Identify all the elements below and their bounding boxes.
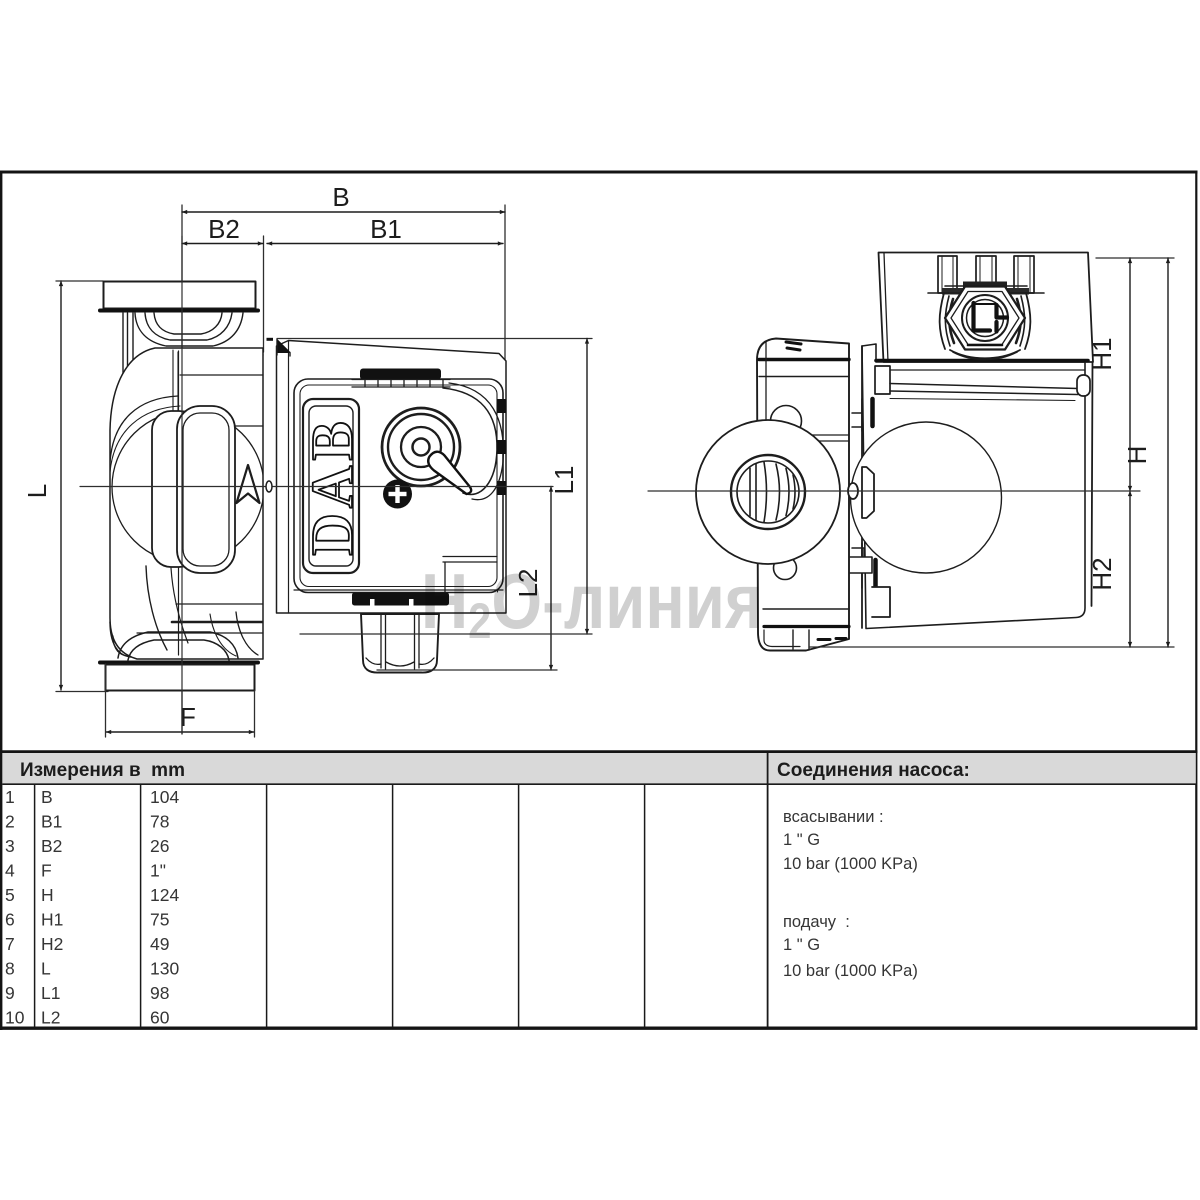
svg-text:2: 2 (5, 812, 15, 832)
svg-text:B: B (332, 182, 349, 212)
svg-text:Соединения насоса:: Соединения насоса: (777, 760, 970, 781)
svg-text:H2: H2 (1087, 557, 1117, 590)
svg-text:60: 60 (150, 1008, 170, 1028)
svg-text:26: 26 (150, 836, 169, 856)
svg-text:7: 7 (5, 934, 15, 954)
svg-text:1 " G: 1 " G (783, 831, 820, 849)
svg-text:L1: L1 (549, 466, 579, 495)
svg-text:9: 9 (5, 983, 15, 1003)
svg-text:49: 49 (150, 934, 169, 954)
svg-text:B: B (41, 787, 53, 807)
svg-text:F: F (41, 861, 52, 881)
svg-text:6: 6 (5, 910, 15, 930)
svg-text:Измерения в mm: Измерения в mm (20, 760, 185, 781)
svg-text:8: 8 (5, 959, 15, 979)
svg-text:75: 75 (150, 910, 169, 930)
svg-text:H2: H2 (41, 934, 63, 954)
svg-text:H1: H1 (41, 910, 63, 930)
svg-text:104: 104 (150, 787, 179, 807)
svg-text:1: 1 (5, 787, 15, 807)
svg-text:1 " G: 1 " G (783, 936, 820, 954)
svg-text:H: H (41, 885, 54, 905)
svg-text:B1: B1 (370, 214, 402, 244)
svg-text:10: 10 (5, 1008, 25, 1028)
svg-text:98: 98 (150, 983, 169, 1003)
svg-text:10 bar (1000 KPa): 10 bar (1000 KPa) (783, 962, 918, 980)
svg-text:подачу :: подачу : (783, 913, 850, 931)
svg-text:10 bar (1000 KPa): 10 bar (1000 KPa) (783, 855, 918, 873)
svg-text:L: L (22, 484, 52, 498)
svg-text:H: H (1122, 446, 1152, 465)
svg-text:5: 5 (5, 885, 15, 905)
svg-text:130: 130 (150, 959, 179, 979)
svg-text:4: 4 (5, 861, 15, 881)
svg-text:L2: L2 (41, 1008, 60, 1028)
svg-text:L: L (41, 959, 51, 979)
svg-text:H1: H1 (1087, 337, 1117, 370)
svg-text:1": 1" (150, 861, 166, 881)
svg-text:всасывании :: всасывании : (783, 808, 884, 826)
svg-text:L1: L1 (41, 983, 60, 1003)
svg-text:B2: B2 (41, 836, 62, 856)
svg-text:B1: B1 (41, 812, 62, 832)
svg-text:B2: B2 (208, 214, 240, 244)
svg-text:124: 124 (150, 885, 179, 905)
svg-text:78: 78 (150, 812, 169, 832)
svg-text:3: 3 (5, 836, 15, 856)
